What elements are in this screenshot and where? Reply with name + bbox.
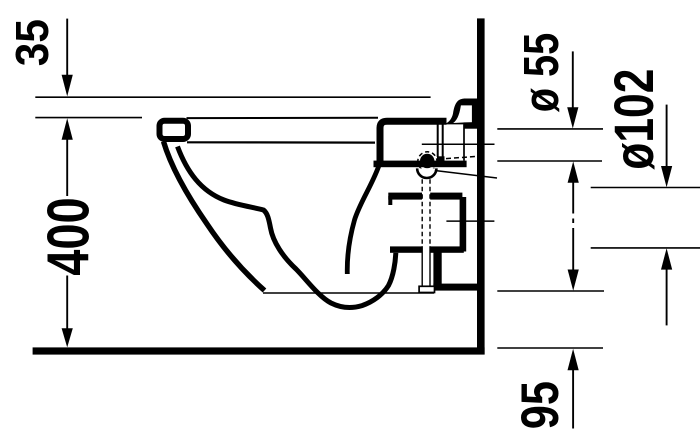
svg-text:ø 55: ø 55 bbox=[514, 33, 569, 113]
svg-text:ø102: ø102 bbox=[604, 69, 666, 170]
svg-text:35: 35 bbox=[7, 19, 58, 66]
svg-text:95: 95 bbox=[511, 381, 570, 429]
svg-text:400: 400 bbox=[36, 197, 101, 275]
